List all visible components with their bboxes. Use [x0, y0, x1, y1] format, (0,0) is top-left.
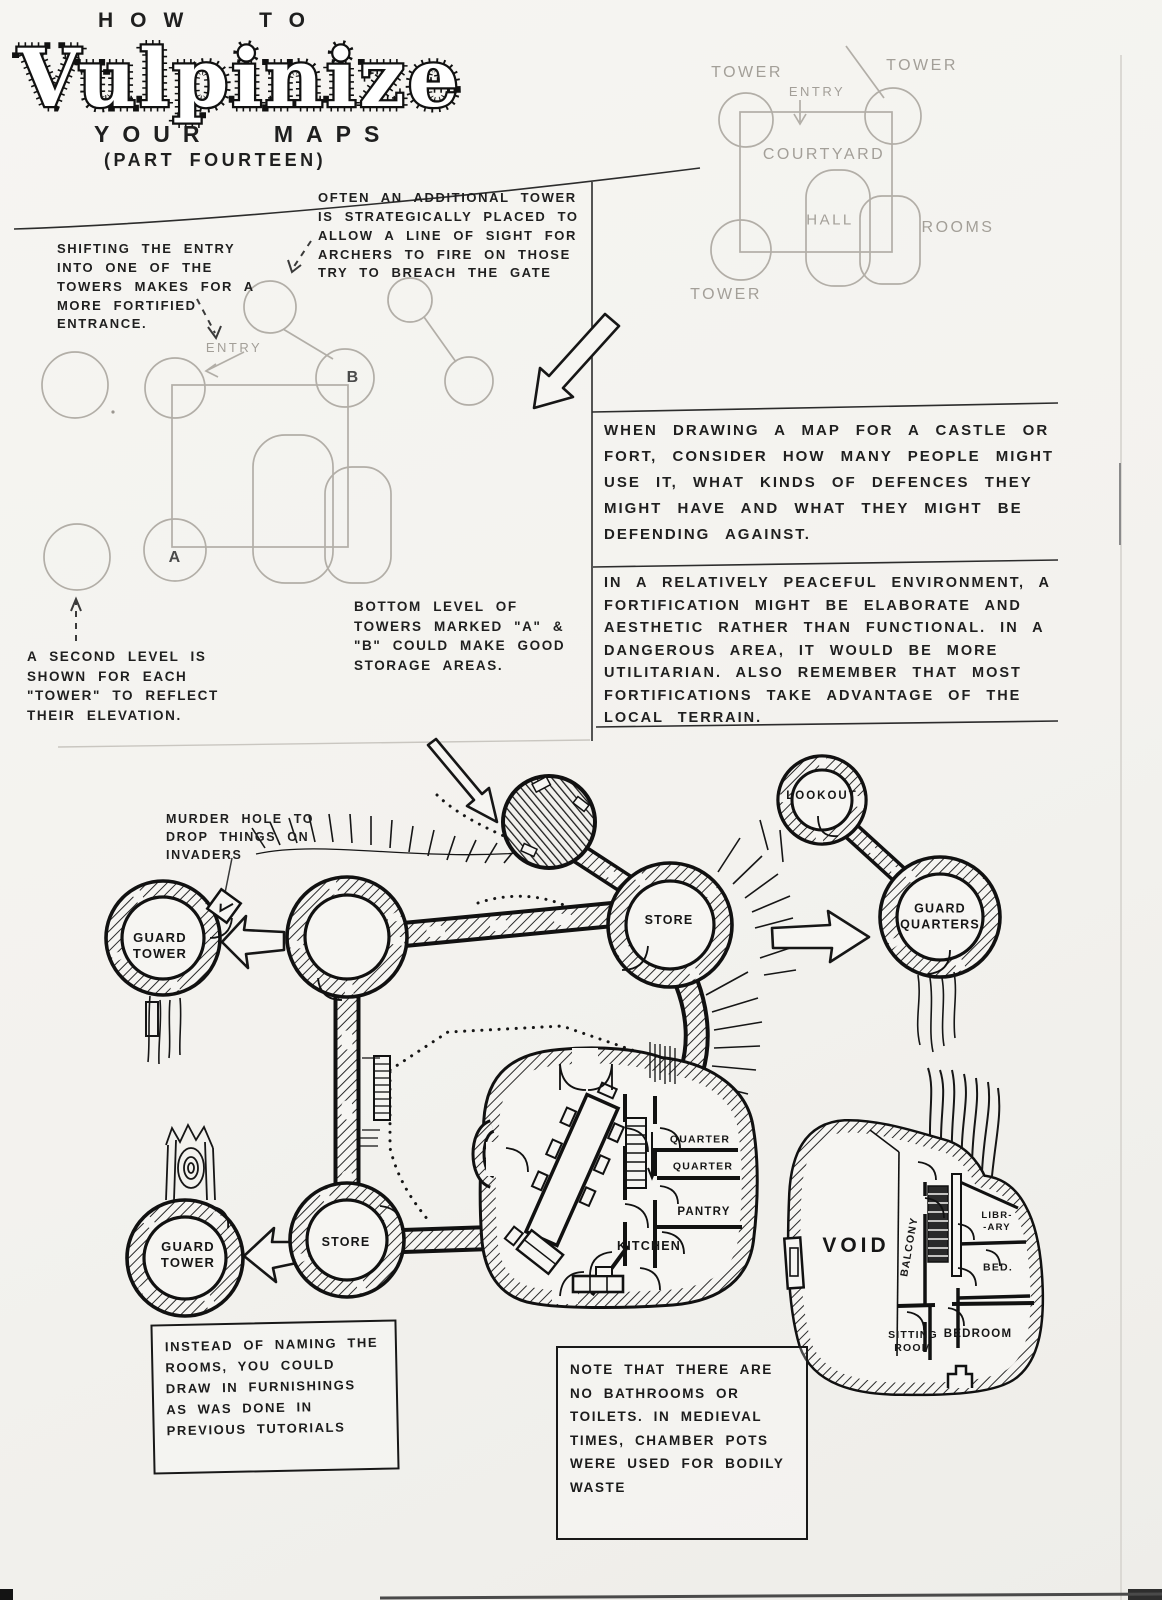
label-guard-tower-nw: GUARD TOWER [133, 930, 187, 963]
note-box-furnishings: INSTEAD OF NAMING THE ROOMS, YOU COULD D… [150, 1319, 399, 1474]
label-pantry: PANTRY [677, 1205, 730, 1219]
title-main-text: Vulpinize [17, 31, 462, 125]
label-void: VOID [822, 1233, 889, 1259]
title-how-to: HOW TO [98, 6, 322, 36]
faint-rule [58, 740, 590, 747]
label-bedroom: BEDROOM [944, 1327, 1012, 1341]
tree-icon [166, 1125, 215, 1200]
sketch2-label-a: A [169, 548, 182, 568]
page-title-art: Vulpinize Vulpinize [17, 31, 462, 125]
sketch-label-entry: ENTRY [789, 84, 845, 100]
label-bed: BED. [983, 1261, 1013, 1274]
label-store-ne: STORE [645, 913, 694, 929]
sketch2-label-entry: ENTRY [206, 340, 262, 356]
note-second-level: A SECOND LEVEL IS SHOWN FOR EACH "TOWER"… [27, 647, 239, 725]
arrow-to-gate-tower-icon [428, 739, 497, 822]
paragraph-peaceful: IN A RELATIVELY PEACEFUL ENVIRONMENT, A … [604, 572, 1062, 730]
paragraph-when-drawing: WHEN DRAWING A MAP FOR A CASTLE OR FORT,… [604, 418, 1056, 548]
scan-artifacts [0, 1589, 1162, 1600]
arrow-to-paragraph-icon [534, 314, 619, 408]
sketch-label-courtyard: COURTYARD [763, 145, 885, 165]
sketch-label-hall: HALL [806, 212, 854, 231]
sketch-label-rooms: ROOMS [922, 218, 995, 238]
label-store-sw: STORE [322, 1235, 371, 1251]
label-sitting-room: SITTING ROOM [888, 1329, 938, 1355]
label-kitchen: KITCHEN [617, 1239, 681, 1255]
sketch-label-tower-b: TOWER [690, 285, 762, 305]
note-additional-tower: OFTEN AN ADDITIONAL TOWER IS STRATEGICAL… [318, 189, 586, 283]
note-shifting-entry: SHIFTING THE ENTRY INTO ONE OF THE TOWER… [57, 240, 275, 334]
sketch-label-tower-tr: TOWER [886, 56, 958, 76]
label-guard-tower-sw: GUARD TOWER [161, 1239, 215, 1272]
stream-icon [918, 972, 956, 1052]
title-part: (PART FOURTEEN) [104, 147, 326, 173]
note-murder-hole: MURDER HOLE TO DROP THINGS ON INVADERS [166, 810, 364, 864]
note-bottom-level: BOTTOM LEVEL OF TOWERS MARKED "A" & "B" … [354, 597, 582, 675]
label-quarter-1: QUARTER [670, 1133, 730, 1146]
label-library: LIBR- -ARY [981, 1210, 1012, 1234]
roots-icon [146, 996, 181, 1064]
arrow-right-guard-quarters-icon [772, 911, 869, 962]
label-lookout: LOOKOUT [786, 789, 858, 803]
label-quarter-2: QUARTER [673, 1160, 733, 1173]
tutorial-page: Vulpinize Vulpinize [0, 0, 1162, 1600]
sketch2-label-b: B [347, 368, 360, 388]
sketch-label-tower-tl: TOWER [711, 63, 783, 83]
label-guard-quarters: GUARD QUARTERS [900, 901, 980, 932]
note-box-bathrooms: NOTE THAT THERE ARE NO BATHROOMS OR TOIL… [556, 1346, 808, 1540]
